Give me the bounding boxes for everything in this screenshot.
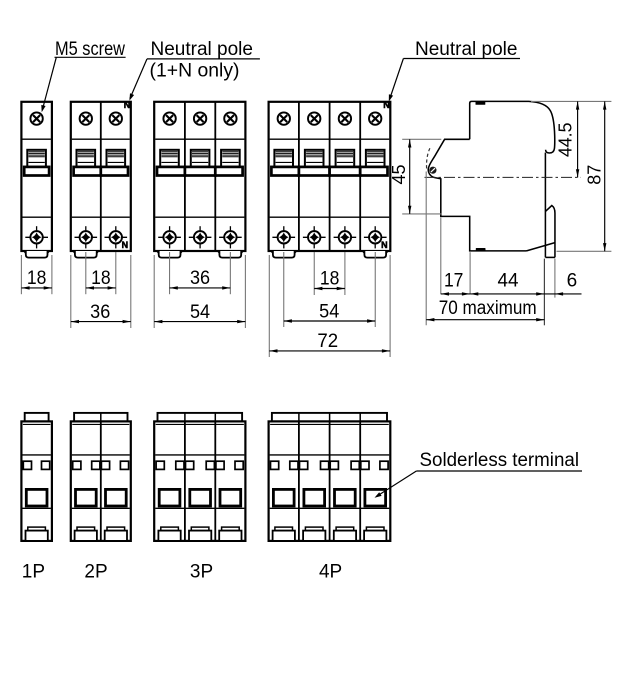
svg-text:N: N [381, 240, 388, 250]
svg-text:6: 6 [567, 271, 578, 292]
svg-text:18: 18 [91, 268, 111, 289]
svg-text:Neutral pole: Neutral pole [415, 39, 517, 60]
svg-text:44.5: 44.5 [555, 123, 575, 158]
svg-text:45: 45 [389, 165, 409, 185]
svg-text:N: N [122, 240, 129, 250]
svg-text:N: N [383, 100, 390, 110]
svg-text:54: 54 [190, 302, 211, 323]
svg-text:36: 36 [90, 302, 110, 323]
svg-text:(1+N only): (1+N only) [150, 61, 240, 82]
svg-text:18: 18 [320, 269, 340, 290]
svg-text:2P: 2P [84, 562, 107, 583]
svg-text:1P: 1P [22, 562, 45, 583]
svg-text:4P: 4P [319, 562, 342, 583]
svg-text:36: 36 [190, 268, 210, 289]
svg-text:54: 54 [319, 301, 340, 322]
svg-text:N: N [124, 100, 131, 110]
svg-text:44: 44 [498, 271, 519, 292]
svg-text:Neutral pole: Neutral pole [151, 39, 253, 60]
svg-text:Solderless terminal: Solderless terminal [420, 450, 580, 471]
svg-text:87: 87 [584, 165, 604, 185]
svg-text:70 maximum: 70 maximum [439, 298, 537, 319]
svg-text:3P: 3P [190, 562, 213, 583]
svg-text:72: 72 [317, 331, 338, 352]
svg-text:17: 17 [444, 271, 464, 292]
svg-text:18: 18 [27, 268, 47, 289]
